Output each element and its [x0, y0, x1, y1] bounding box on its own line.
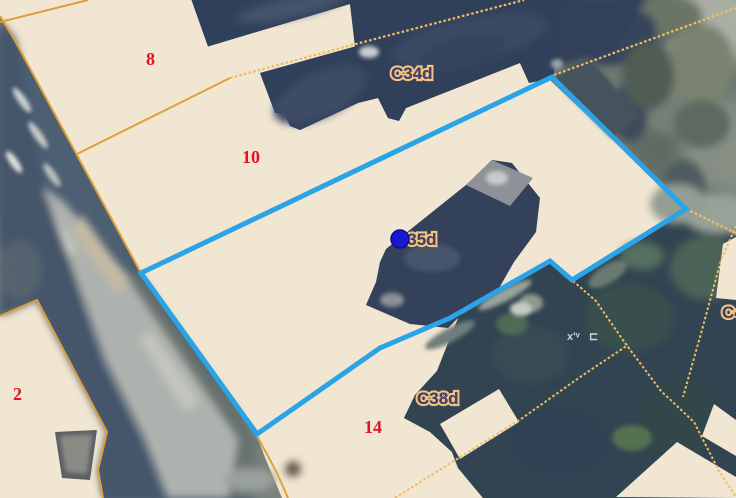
svg-text:x'ᵛ: x'ᵛ [567, 331, 581, 343]
svg-text:C34d: C34d [391, 64, 433, 83]
svg-text:⊏: ⊏ [589, 331, 598, 343]
svg-text:14: 14 [364, 417, 382, 437]
svg-text:8: 8 [146, 49, 155, 69]
svg-text:2: 2 [13, 384, 22, 404]
svg-text:10: 10 [242, 147, 260, 167]
svg-text:C38d: C38d [417, 389, 459, 408]
svg-text:C4: C4 [722, 303, 736, 322]
